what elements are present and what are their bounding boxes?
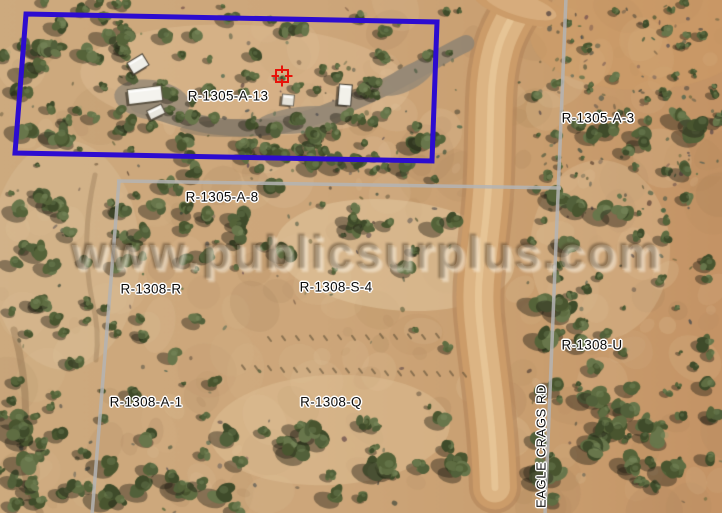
watermark: www.publicsurplus.com (72, 226, 663, 281)
map-viewport[interactable]: R-1305-A-13 R-1305-A-3 R-1305-A-8 R-1308… (0, 0, 722, 513)
parcel-label-r-1305-a-3: R-1305-A-3 (562, 111, 635, 126)
parcel-label-r-1308-u: R-1308-U (562, 338, 623, 353)
parcel-label-r-1308-r: R-1308-R (121, 282, 182, 297)
parcel-label-r-1308-s-4: R-1308-S-4 (300, 280, 373, 295)
parcel-label-r-1308-q: R-1308-Q (300, 395, 362, 410)
parcel-label-r-1308-a-1: R-1308-A-1 (110, 395, 183, 410)
parcel-label-r-1305-a-8: R-1305-A-8 (186, 190, 259, 205)
road-label-eagle-crags-rd: EAGLE CRAGS RD (534, 384, 549, 508)
parcel-label-r-1305-a-13: R-1305-A-13 (188, 89, 269, 104)
